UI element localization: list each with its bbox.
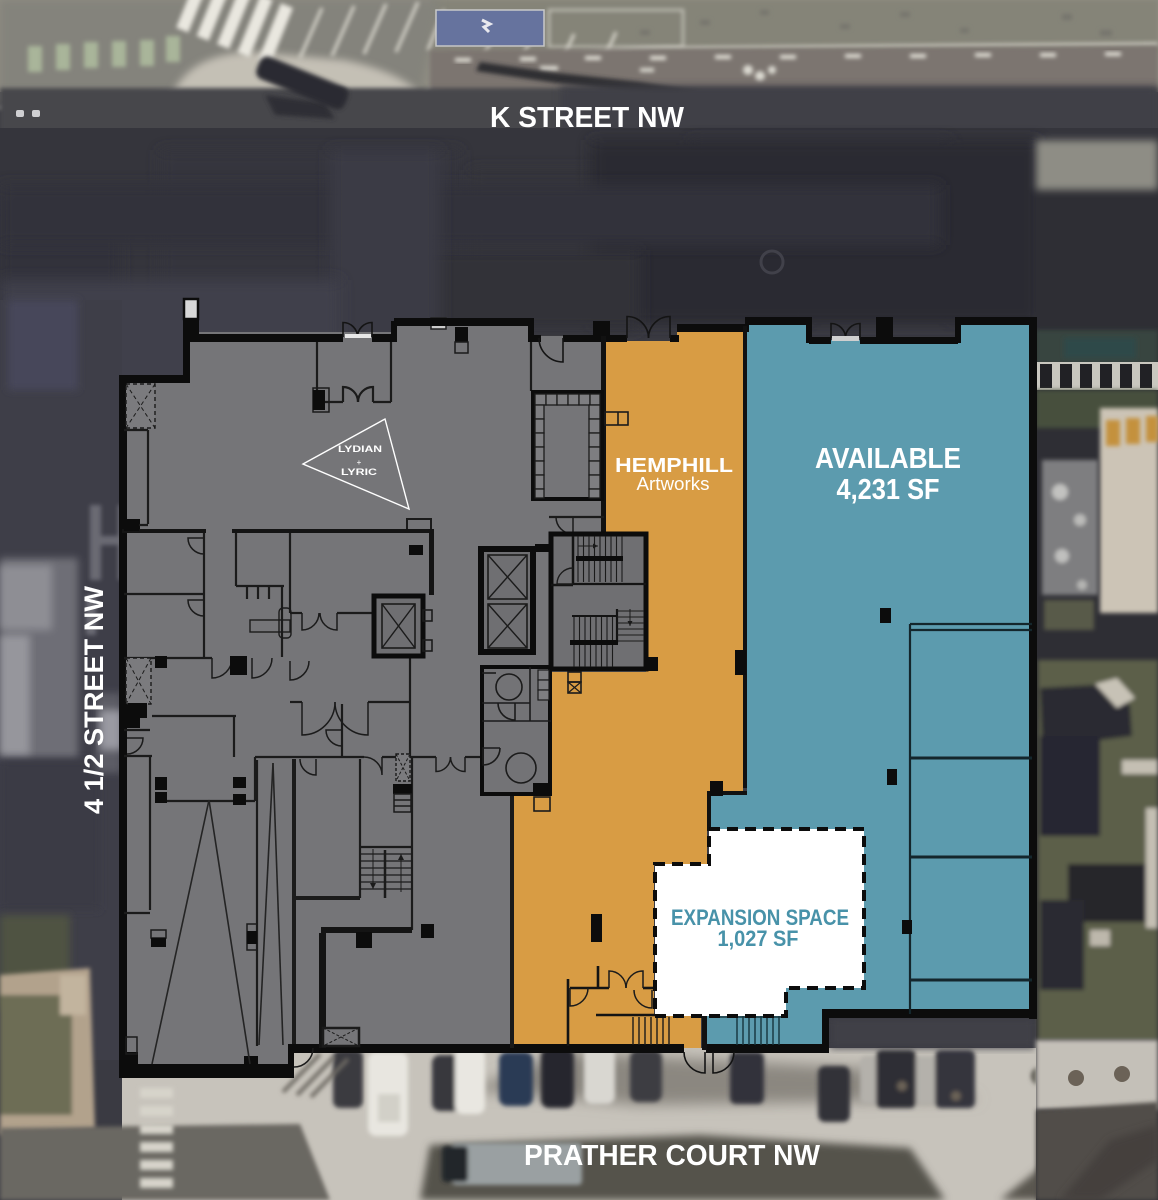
svg-text:4,231 SF: 4,231 SF (837, 474, 940, 506)
svg-text:LYDIAN: LYDIAN (338, 444, 382, 454)
svg-text:LYRIC: LYRIC (341, 467, 378, 477)
svg-text:K STREET NW: K STREET NW (490, 102, 685, 134)
svg-text:1,027 SF: 1,027 SF (718, 926, 799, 951)
svg-text:Artworks: Artworks (637, 474, 710, 494)
svg-text:AVAILABLE: AVAILABLE (815, 443, 961, 475)
svg-text:PRATHER COURT NW: PRATHER COURT NW (524, 1140, 821, 1172)
svg-text:+: + (357, 458, 362, 467)
svg-text:4 1/2 STREET NW: 4 1/2 STREET NW (79, 585, 109, 814)
